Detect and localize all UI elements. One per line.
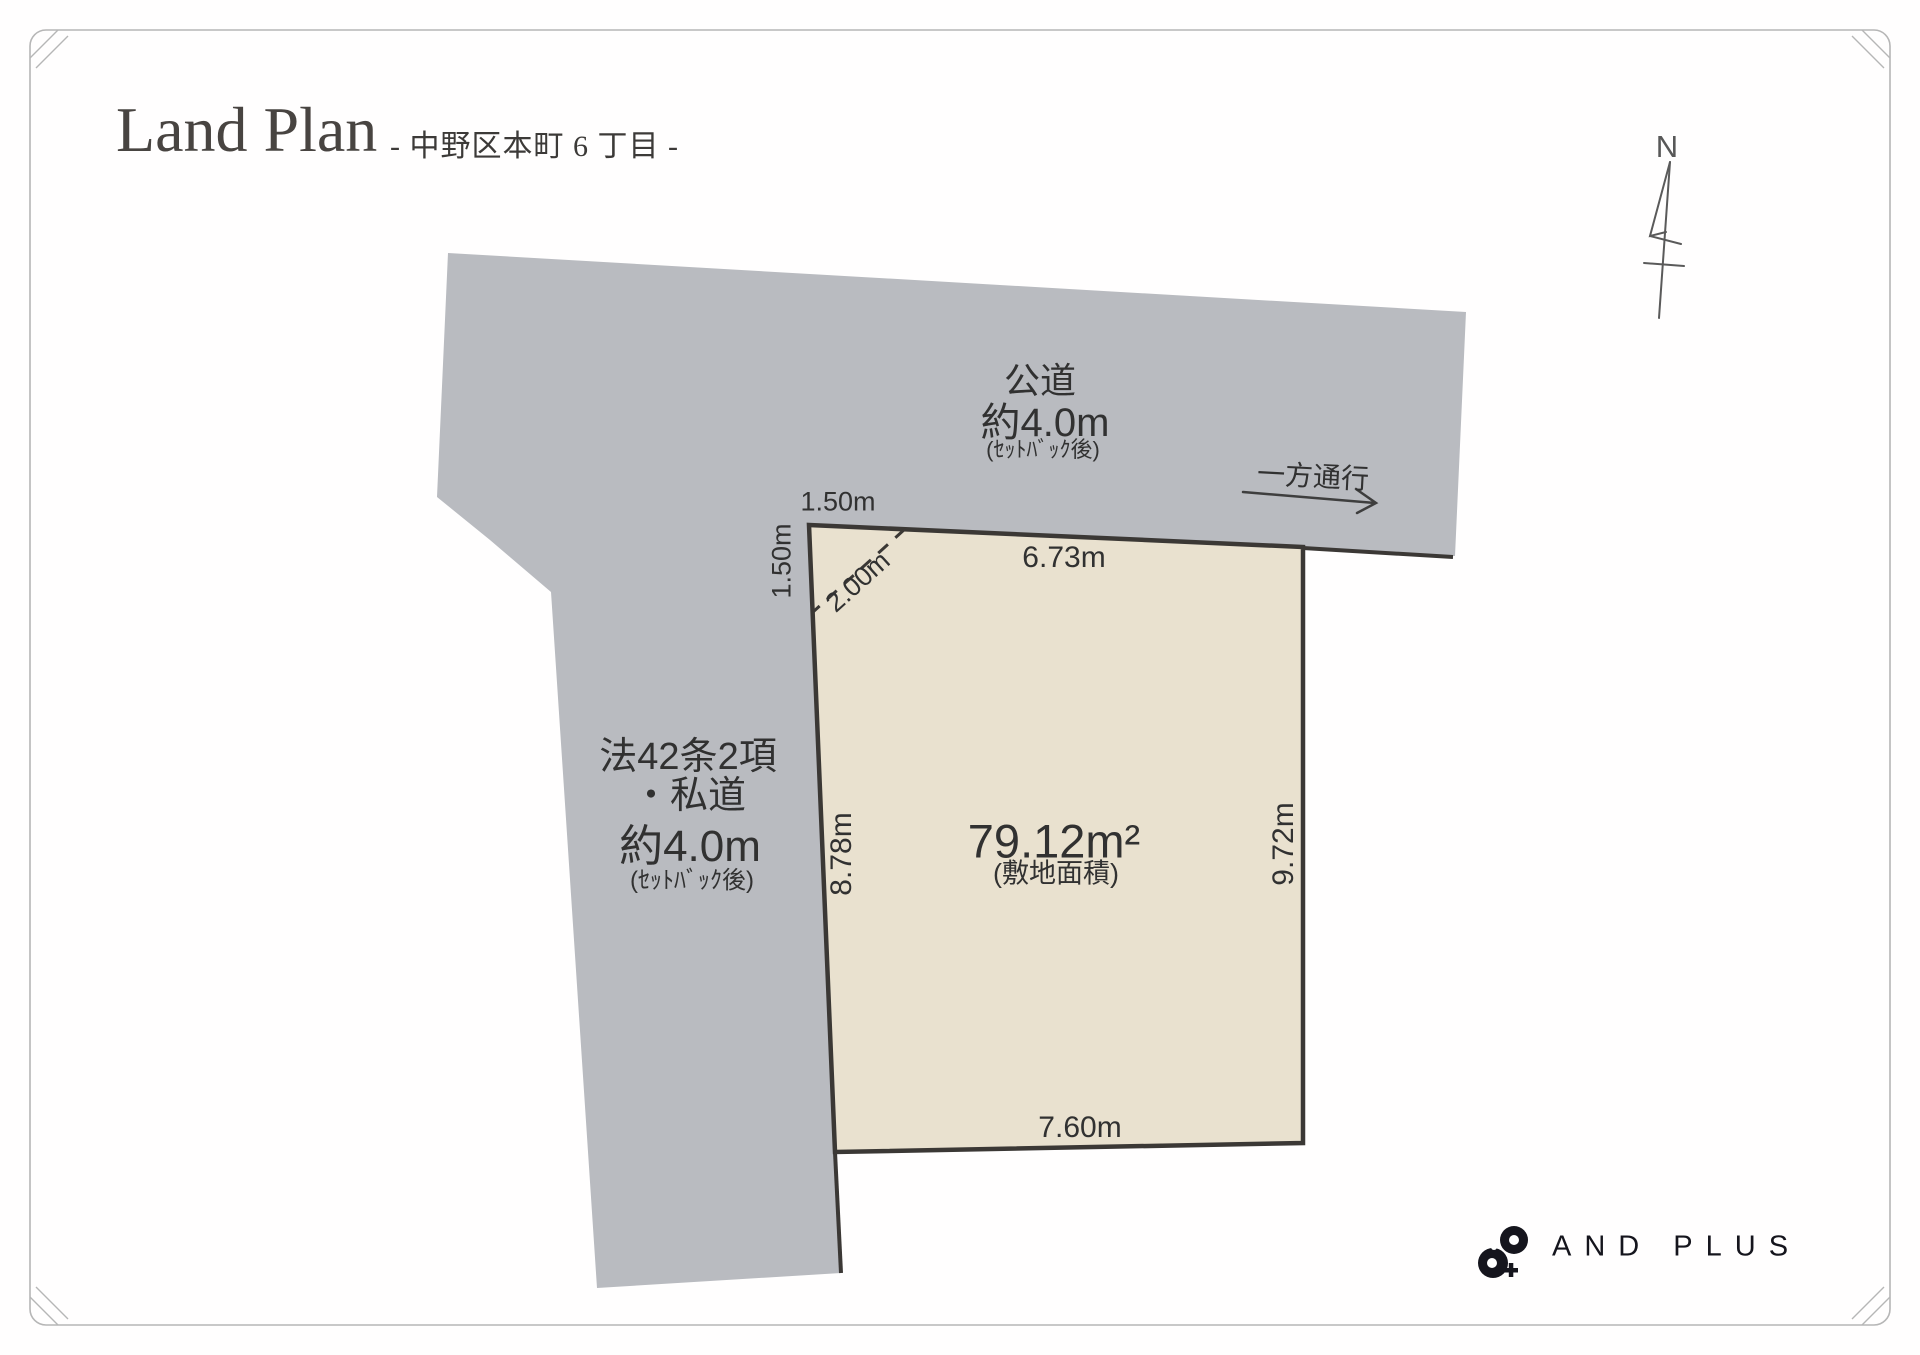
land-plan-page: Land Plan - 中野区本町 6 丁目 - N 公道 約4.0m (ｾｯﾄ…	[0, 0, 1920, 1355]
site-plan-drawing	[0, 0, 1920, 1355]
north-arrow-icon	[1644, 162, 1684, 318]
site-parcel-shape	[809, 525, 1303, 1152]
and-plus-logo-icon	[1478, 1226, 1528, 1278]
